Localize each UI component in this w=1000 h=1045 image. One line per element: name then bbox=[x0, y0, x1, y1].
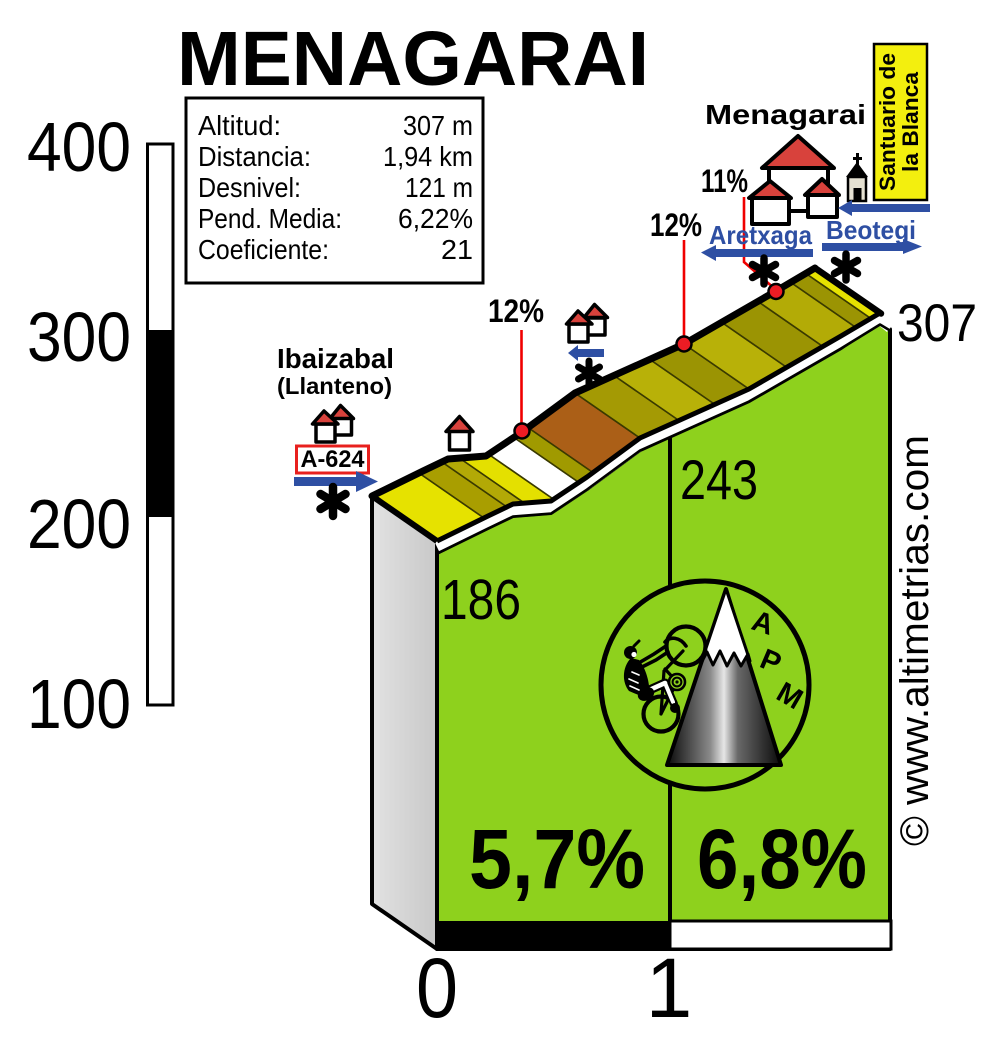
svg-text:Aretxaga: Aretxaga bbox=[709, 220, 812, 250]
svg-text:121 m: 121 m bbox=[405, 172, 473, 203]
svg-text:Distancia:: Distancia: bbox=[198, 141, 311, 172]
svg-text:243: 243 bbox=[680, 448, 758, 511]
svg-text:1,94 km: 1,94 km bbox=[383, 141, 473, 172]
svg-text:0: 0 bbox=[416, 941, 458, 1035]
svg-text:Ibaizabal: Ibaizabal bbox=[277, 343, 394, 374]
svg-text:Desnivel:: Desnivel: bbox=[198, 172, 301, 203]
svg-text:Beotegi: Beotegi bbox=[826, 215, 916, 245]
svg-text:11%: 11% bbox=[701, 163, 748, 199]
svg-text:21: 21 bbox=[441, 234, 473, 265]
svg-text:186: 186 bbox=[441, 568, 521, 632]
svg-text:200: 200 bbox=[27, 485, 131, 563]
svg-text:300: 300 bbox=[27, 298, 131, 376]
svg-text:1: 1 bbox=[646, 941, 693, 1035]
svg-text:A-624: A-624 bbox=[301, 446, 366, 473]
svg-text:5,7%: 5,7% bbox=[469, 812, 645, 906]
svg-text:Menagarai: Menagarai bbox=[705, 99, 866, 130]
svg-text:307: 307 bbox=[897, 294, 977, 353]
svg-text:Coeficiente:: Coeficiente: bbox=[198, 234, 329, 265]
svg-text:12%: 12% bbox=[650, 207, 702, 243]
svg-text:© www.altimetrias.com: © www.altimetrias.com bbox=[893, 435, 937, 846]
svg-text:Santuario de: Santuario de bbox=[875, 53, 900, 191]
svg-text:6,22%: 6,22% bbox=[398, 203, 473, 234]
svg-text:100: 100 bbox=[27, 665, 131, 743]
svg-text:400: 400 bbox=[27, 108, 131, 186]
svg-text:la Blanca: la Blanca bbox=[898, 71, 923, 172]
svg-text:Pend. Media:: Pend. Media: bbox=[198, 203, 342, 234]
svg-text:307 m: 307 m bbox=[403, 110, 473, 141]
svg-text:Altitud:: Altitud: bbox=[198, 110, 281, 141]
svg-text:(Llanteno): (Llanteno) bbox=[277, 373, 392, 399]
svg-text:12%: 12% bbox=[488, 293, 544, 329]
svg-text:6,8%: 6,8% bbox=[697, 812, 867, 906]
svg-text:MENAGARAI: MENAGARAI bbox=[177, 16, 649, 102]
